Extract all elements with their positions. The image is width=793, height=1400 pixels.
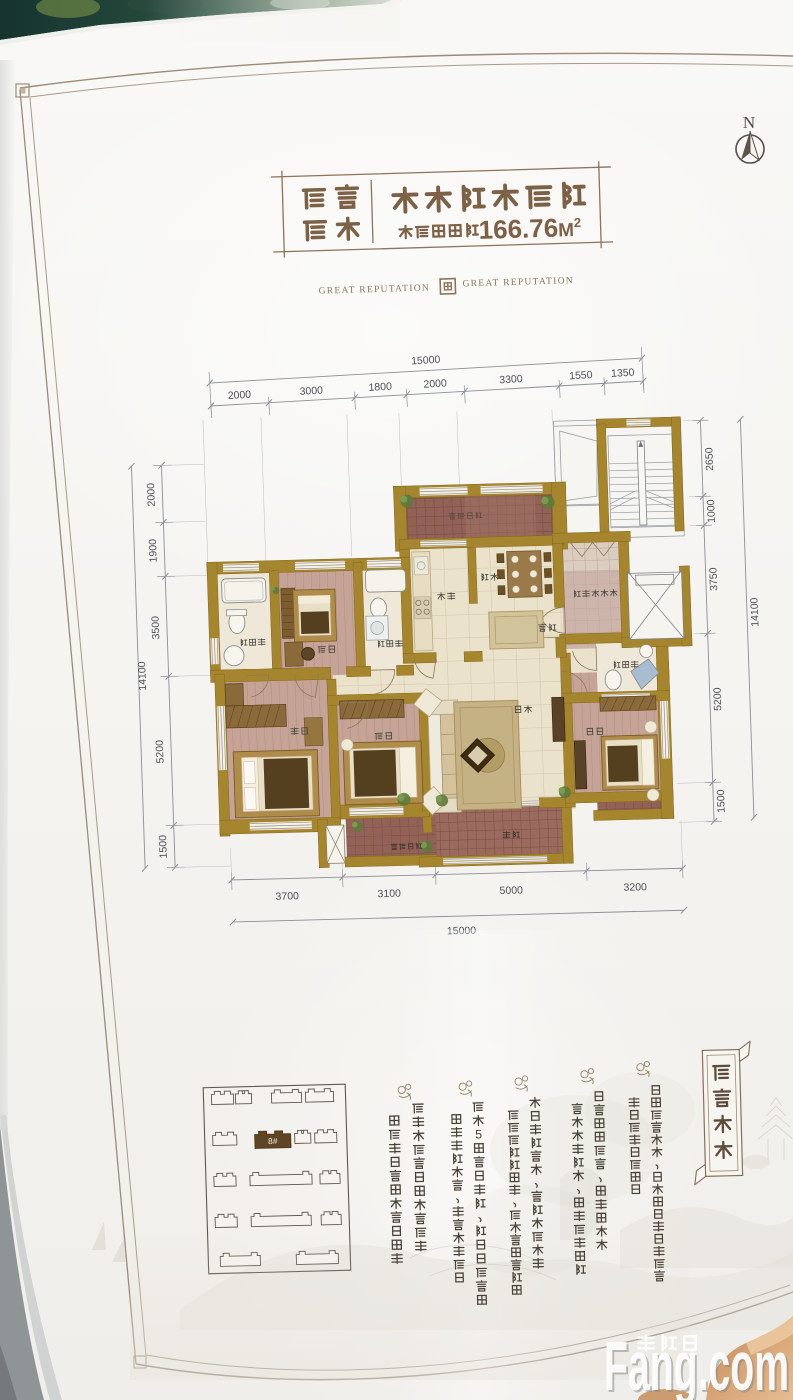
svg-text:3000: 3000 (299, 385, 323, 398)
svg-text:3200: 3200 (623, 881, 647, 894)
svg-text:2000: 2000 (145, 483, 158, 507)
svg-text:2000: 2000 (423, 377, 447, 390)
svg-text:1900: 1900 (147, 539, 160, 563)
svg-text:N: N (743, 113, 755, 132)
svg-text:2650: 2650 (703, 447, 716, 471)
svg-text:15000: 15000 (411, 354, 441, 368)
svg-text:1500: 1500 (157, 835, 170, 859)
svg-text:5: 5 (475, 1127, 482, 1141)
svg-text:1000: 1000 (705, 499, 718, 523)
svg-text:1350: 1350 (611, 367, 635, 380)
svg-text:2000: 2000 (227, 389, 251, 402)
svg-text:14100: 14100 (136, 661, 149, 691)
svg-text:1500: 1500 (715, 789, 728, 813)
svg-text:5200: 5200 (154, 740, 167, 764)
svg-text:3100: 3100 (377, 888, 401, 901)
svg-text:14100: 14100 (748, 597, 761, 627)
svg-text:5000: 5000 (499, 884, 523, 897)
svg-text:3500: 3500 (150, 616, 163, 640)
svg-text:1550: 1550 (569, 369, 593, 382)
svg-text:8#: 8# (268, 1136, 278, 1146)
svg-text:3300: 3300 (499, 373, 523, 386)
svg-text:3750: 3750 (707, 567, 720, 591)
svg-text:3700: 3700 (275, 890, 299, 903)
svg-text:5200: 5200 (712, 687, 725, 711)
svg-text:1800: 1800 (368, 381, 392, 394)
